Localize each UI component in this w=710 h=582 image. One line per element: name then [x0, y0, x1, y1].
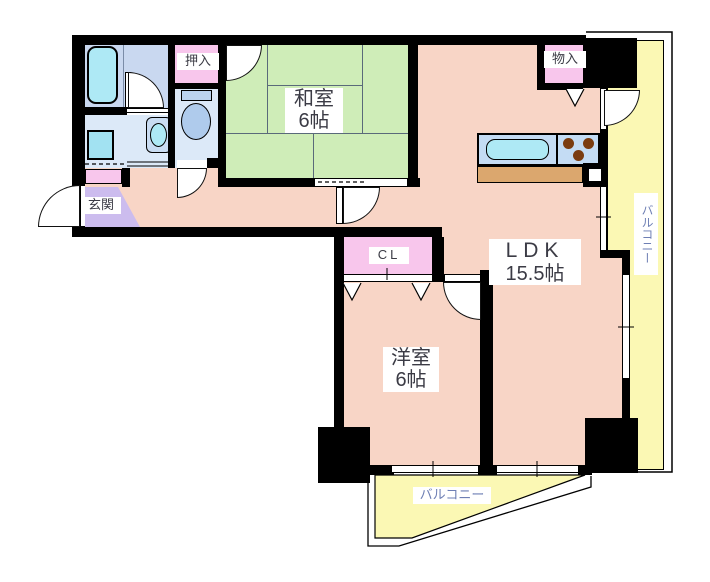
kitchen-sink — [486, 139, 549, 160]
wall — [478, 465, 497, 475]
wall — [408, 35, 418, 187]
wall — [480, 270, 493, 465]
kitchen-counter-divider — [556, 133, 558, 166]
stove-burner — [583, 138, 594, 149]
laundry-bowl — [150, 123, 167, 147]
door-track — [127, 108, 168, 109]
wall — [622, 258, 630, 275]
tatami-line — [267, 45, 268, 133]
ldk-size: 15.5帖 — [489, 263, 581, 285]
pillar — [318, 427, 370, 483]
toilet-bowl — [181, 103, 211, 140]
wall — [122, 168, 130, 187]
wall — [432, 237, 444, 282]
wall — [72, 35, 85, 186]
yoshitsu-name: 洋室 — [383, 347, 439, 369]
tatami-line — [313, 133, 314, 178]
balcony-right-label: バルコニー — [634, 193, 658, 275]
sliding-door-opening — [315, 179, 407, 186]
washitsu-size: 6帖 — [285, 110, 343, 132]
window — [600, 187, 607, 250]
wall — [218, 35, 226, 187]
toilet-tank — [181, 90, 212, 101]
wall — [207, 158, 218, 168]
pillar — [585, 418, 638, 473]
kitchen-cabinet — [477, 166, 583, 183]
wall — [622, 378, 630, 420]
balcony-bottom-deck — [375, 475, 585, 538]
wall — [334, 237, 344, 427]
wall — [175, 83, 218, 89]
balcony-bottom-label: バルコニー — [413, 487, 491, 504]
wall — [85, 107, 127, 115]
washitsu-name: 和室 — [285, 88, 343, 110]
toilet-doorway — [177, 160, 207, 168]
oshiire-label: 押入 — [177, 53, 219, 70]
ldk-label: LDK 15.5帖 — [489, 239, 581, 285]
hall-door-leaf — [336, 187, 343, 224]
bathtub — [87, 46, 118, 104]
yoshitsu-door-leaf — [444, 274, 481, 282]
bathroom-deck-line — [123, 43, 124, 107]
washitsu-label: 和室 6帖 — [285, 88, 343, 133]
wall — [600, 250, 630, 258]
washbasin — [87, 130, 114, 160]
window — [622, 275, 630, 378]
cl-label: CL — [369, 247, 409, 264]
wall — [578, 465, 592, 475]
tatami-line — [226, 133, 408, 134]
yoshitsu-label: 洋室 6帖 — [383, 347, 439, 392]
balcony-bottom-rail — [368, 475, 591, 546]
stove-burner — [573, 150, 584, 161]
monoire-label: 物入 — [544, 51, 586, 68]
wall — [72, 227, 442, 237]
cl-folding-door — [344, 274, 432, 282]
window — [497, 465, 578, 473]
wall — [370, 465, 394, 475]
wall — [168, 35, 175, 168]
floor-plan: 和室 6帖 LDK 15.5帖 洋室 6帖 押入 物入 CL 玄関 バルコニー … — [0, 0, 710, 582]
yoshitsu-size: 6帖 — [383, 369, 439, 391]
pillar — [583, 38, 637, 88]
pillar-notch — [589, 169, 601, 181]
ldk-name: LDK — [489, 239, 581, 263]
entrance-door-swing — [38, 185, 80, 227]
tatami-line — [267, 85, 362, 86]
tatami-line — [362, 45, 363, 133]
genkan-label: 玄関 — [81, 197, 121, 214]
door-track — [127, 112, 168, 113]
wall — [537, 83, 583, 90]
stove-burner — [563, 138, 574, 149]
window — [392, 465, 478, 473]
wall — [72, 35, 586, 45]
shoe-cabinet — [85, 169, 122, 184]
